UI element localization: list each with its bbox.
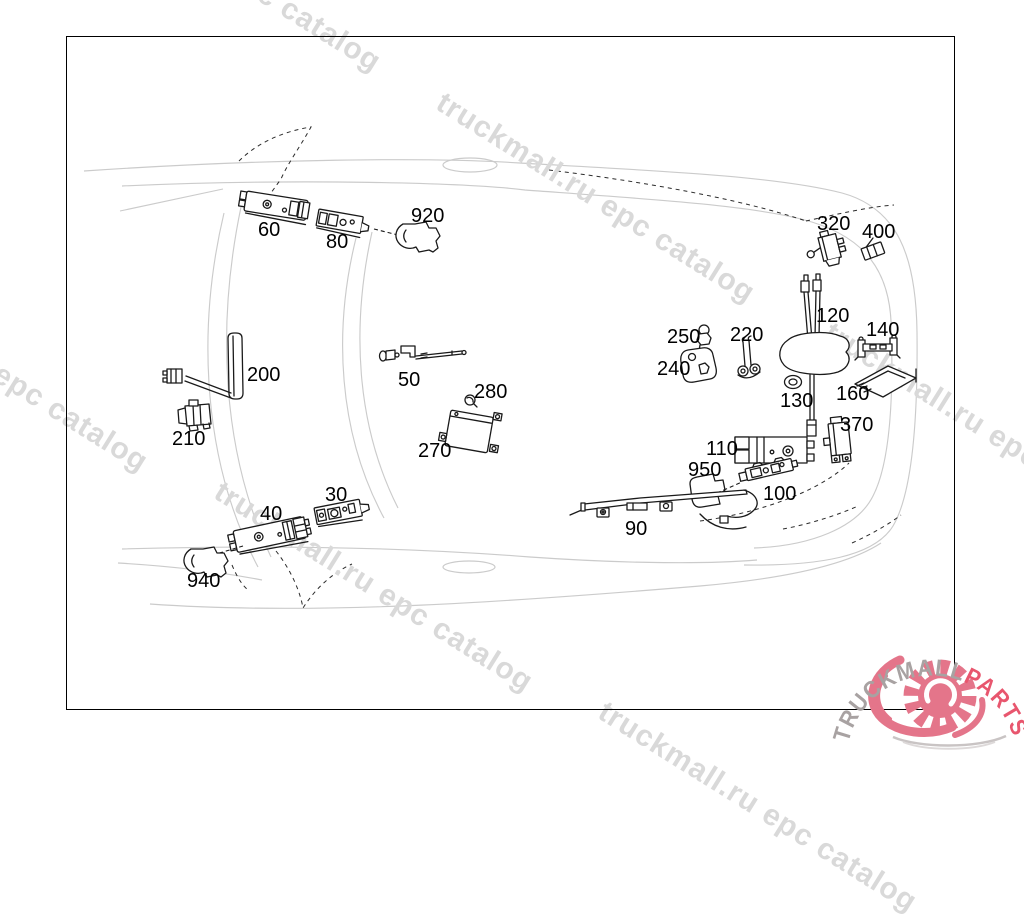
brand-logo: TRUCKMALLPARTS bbox=[0, 0, 1024, 750]
parts-diagram-page: { "watermark": { "text": "truckmall.ru e… bbox=[0, 0, 1024, 750]
